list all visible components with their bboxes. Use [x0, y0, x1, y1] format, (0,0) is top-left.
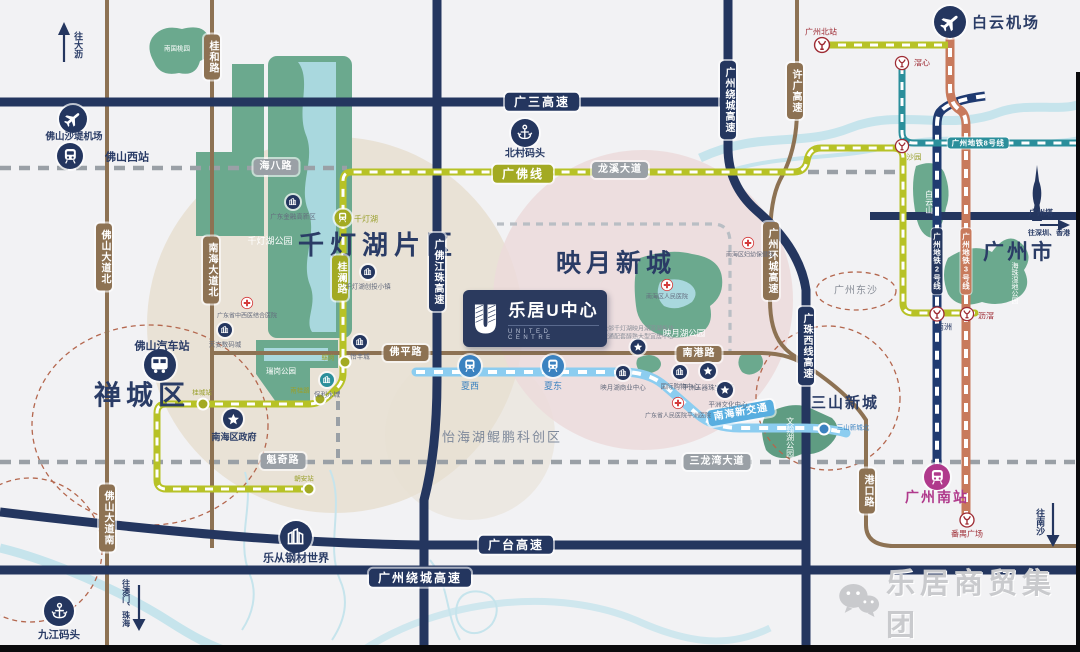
ruigang-park-label: 瑞岗公园 — [266, 368, 296, 377]
bottom-frame-bar — [0, 645, 1080, 652]
jiaoxin-metro-icon — [895, 56, 910, 71]
yingyuehu-park-label: 映月湖公园 — [663, 329, 706, 339]
road-label-nanhai-dadao-bei: 南海大道北 — [203, 237, 219, 304]
chaoan-station-icon — [303, 483, 316, 496]
fuyou-hospital-label: 南海区妇幼保健院 — [726, 253, 774, 260]
shatang-airport-icon — [59, 105, 87, 133]
foshan-bus-station-label: 佛山汽车站 — [135, 341, 190, 354]
financial-zone-icon — [286, 195, 300, 209]
transit-label-line8: 广州地铁8号线 — [948, 138, 1009, 149]
footer-brand: 乐居商贸集团 — [886, 560, 1080, 644]
region-dongsha: 广州东沙 — [834, 285, 878, 297]
renmin-hospital-icon — [672, 397, 685, 410]
nanguilu-station-label: 南桂路 — [290, 387, 310, 394]
transit-label-line2: 广州地铁2号线 — [932, 228, 943, 294]
right-frame-bar — [1076, 72, 1080, 652]
nanhai-gov-icon — [223, 409, 243, 429]
lecong-steel-icon — [280, 521, 312, 553]
road-label-guangtai: 广台高速 — [479, 536, 553, 554]
road-label-foping: 佛平路 — [384, 345, 429, 361]
guicheng-station-label: 桂城站 — [192, 389, 212, 396]
baiyunshan-label: 白云山 — [924, 190, 933, 214]
road-label-guangfo-jiangzhu: 广佛江珠高速 — [429, 233, 445, 311]
logo-title: 乐居U中心 — [508, 296, 598, 321]
xiadong-station-label: 夏东 — [544, 381, 562, 391]
guangzhounan-station-label: 广州南站 — [905, 489, 969, 505]
chuangtou-town-label: 千灯湖创投小镇 — [345, 283, 391, 290]
foshanxi-station-icon — [57, 143, 83, 169]
location-map: 千灯湖片区 映月新城 广州市 禅城区 三山新城 怡海湖鲲鹏科创区 广州东沙 广三… — [0, 0, 1080, 652]
road-label-foshan-dadao-bei: 佛山大道北 — [96, 224, 112, 291]
road-label-gangkou: 港口路 — [859, 469, 875, 514]
tianan-digital-icon — [218, 323, 232, 337]
wechat-icon — [836, 582, 880, 625]
baoli-watercity-icon — [320, 373, 334, 387]
arrow-label-nansha: 往南沙 — [1035, 509, 1045, 536]
beicun-wharf-label: 北村码头 — [505, 148, 545, 160]
chaoan-station-label: 朝安站 — [294, 475, 314, 482]
foshanxi-station-label: 佛山西站 — [105, 152, 149, 165]
zhongxiyi-hospital-label: 广东省中西医结合医院 — [217, 314, 277, 321]
yingyuehu-mall-label: 映月湖商业中心 — [600, 384, 646, 391]
arrow-label-dali: 往大沥 — [73, 32, 83, 59]
xiaxi-station-label: 夏西 — [461, 381, 479, 391]
region-yingyue: 映月新城 — [556, 250, 676, 279]
road-label-raocheng-bottom: 广州绕城高速 — [369, 569, 471, 587]
wenhanhu-park-label: 文翰湖公园 — [785, 417, 794, 457]
logo-subtitle: UNITED CENTRE — [508, 325, 599, 341]
region-chancheng: 禅城区 — [94, 380, 190, 411]
baiyun-airport-icon — [934, 6, 966, 38]
lijiao-metro-icon — [960, 307, 975, 322]
road-label-xuguang: 许广高速 — [787, 63, 803, 119]
project-star-icon — [631, 340, 646, 355]
road-label-guangzhu-xixian: 广珠西线高速 — [798, 307, 814, 385]
renmin-hospital-label: 广东省人民医院平洲医院 — [645, 414, 711, 421]
jiujiang-wharf-label: 九江码头 — [38, 629, 80, 641]
transit-label-line3: 广州地铁3号线 — [961, 228, 972, 294]
region-sanshan: 三山新城 — [811, 394, 879, 411]
panyu-square-metro-label: 番禺广场 — [951, 529, 983, 538]
panyu-square-metro-icon — [959, 512, 975, 528]
road-label-sanlongwan: 三龙湾大道 — [684, 454, 751, 470]
road-label-haiba: 海八路 — [254, 159, 299, 175]
nanzhou-metro-label: 南洲 — [936, 322, 952, 331]
road-label-guihe: 桂和路 — [204, 35, 220, 80]
beicun-wharf-icon — [511, 119, 539, 147]
shatang-airport-label: 佛山沙堤机场 — [45, 133, 102, 144]
fuyou-hospital-icon — [742, 237, 755, 250]
transit-label-guangfo-line: 广佛线 — [493, 165, 553, 183]
intl-mall-icon — [673, 365, 687, 379]
nanhai-hospital-label: 南海区人民医院 — [646, 295, 688, 302]
zhongxiyi-hospital-icon — [241, 297, 254, 310]
xiadong-station-icon — [542, 355, 564, 377]
shayuan-metro-icon — [895, 139, 910, 154]
sanshan-bei-station-label: 三山新城北 — [837, 424, 870, 431]
nanguo-taoyuan-label: 南国桃园 — [164, 45, 190, 52]
nanhai-hospital-icon — [661, 279, 674, 292]
jiaoxin-metro-label: 滘心 — [914, 58, 930, 67]
road-label-longxi: 龙溪大道 — [592, 162, 648, 178]
road-label-nangang: 南港路 — [677, 346, 722, 362]
wenhua-center-label: 平洲文化中心 — [709, 401, 748, 408]
road-label-guilan: 桂澜路 — [332, 256, 348, 301]
yingyuehu-mall-icon — [616, 366, 630, 380]
baoli-watercity-label: 保利水城 — [314, 391, 340, 398]
haizhu-wetland-label: 海珠湿地公园 — [1010, 262, 1018, 304]
region-guangzhou: 广州市 — [983, 241, 1055, 265]
jiujiang-wharf-icon — [44, 596, 74, 626]
region-yihaihu: 怡海湖鲲鹏科创区 — [442, 431, 562, 446]
lijiao-metro-label: 沥滘 — [978, 311, 994, 320]
guangzhoubei-metro-icon — [814, 37, 831, 54]
wenhua-center-icon — [717, 382, 733, 398]
foshan-bus-station-icon — [144, 349, 176, 381]
nanzhou-metro-icon — [929, 306, 945, 322]
guicheng-station-icon — [197, 398, 210, 411]
guangzhoubei-metro-label: 广州北站 — [805, 27, 837, 36]
yifeng-city-icon — [353, 335, 367, 349]
financial-zone-label: 广东金融高新区 — [270, 213, 316, 220]
road-label-foshan-dadao-nan: 佛山大道南 — [99, 485, 115, 552]
shayuan-metro-label: 沙园 — [907, 154, 922, 163]
yifeng-city-label: 怡丰城 — [350, 353, 370, 360]
road-label-huancheng: 广州环城高速 — [763, 222, 779, 300]
logo-u-icon — [471, 299, 500, 339]
guangtai-highway — [0, 512, 806, 545]
leigang-station-label: 𧒽岗 — [322, 354, 335, 361]
xiaxi-station-icon — [459, 355, 481, 377]
tianan-digital-label: 天安数码城 — [209, 341, 242, 348]
road-label-kuiqi: 魁奇路 — [261, 453, 306, 469]
yuqi-town-icon — [700, 363, 716, 379]
nanhai-gov-label: 南海区政府 — [211, 432, 256, 442]
lecong-steel-label: 乐从钢材世界 — [263, 553, 329, 566]
qiandenghu-station-icon — [335, 210, 352, 227]
guangzhounan-station-icon — [924, 464, 950, 490]
canton-tower-label: 广州塔 — [1029, 208, 1053, 217]
arrow-label-macau-zhuhai: 往澳门、珠海 — [121, 579, 130, 627]
sanshan-bei-station-icon — [818, 423, 831, 436]
project-logo: 乐居U中心 UNITED CENTRE — [463, 290, 607, 347]
chuangtou-town-icon — [361, 265, 375, 279]
arrow-label-shenzhen-hk: 往深圳、香港 — [1028, 230, 1070, 238]
qiandenghu-park-label: 千灯湖公园 — [247, 236, 292, 246]
road-label-guangsan: 广三高速 — [505, 93, 579, 111]
road-label-raocheng-top: 广州绕城高速 — [720, 61, 736, 139]
qiandenghu-station-label: 千灯湖 — [354, 214, 378, 223]
baiyun-airport-label: 白云机场 — [972, 14, 1040, 31]
